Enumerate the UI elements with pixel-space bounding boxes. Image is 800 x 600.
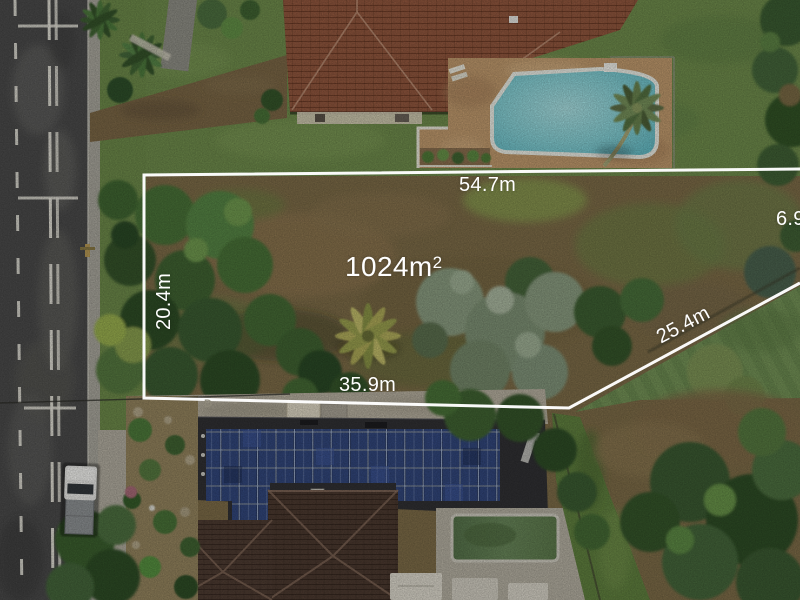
dimension-top: 54.7m	[459, 174, 516, 197]
dimension-bottom: 35.9m	[339, 374, 396, 397]
aerial-property-photo: 54.7m 6.9m 25.4m 20.4m 35.9m 1024m2 D	[0, 0, 800, 600]
ground-marking-d: D	[204, 399, 212, 410]
dimension-right: 6.9m	[776, 208, 800, 231]
area-label: 1024m2	[345, 252, 442, 281]
area-superscript: 2	[433, 253, 442, 272]
area-value: 1024m	[345, 251, 433, 282]
photo-grain	[0, 0, 800, 600]
dimension-left: 20.4m	[153, 273, 176, 330]
photo-scene	[0, 0, 800, 600]
